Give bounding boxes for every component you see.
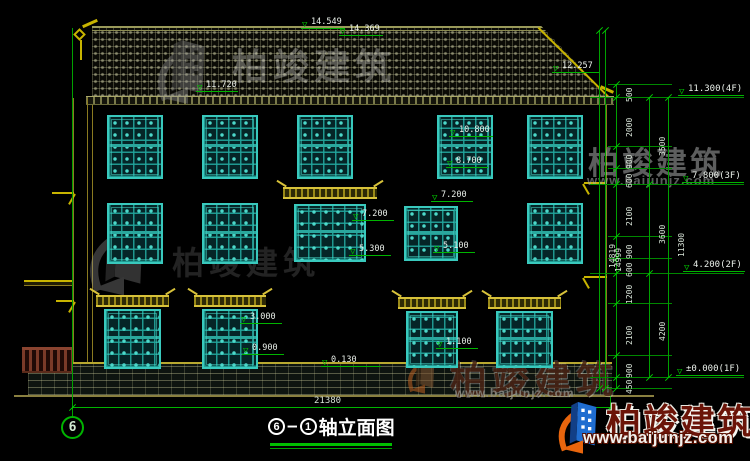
overall-width-dim: 21380 [314,396,341,406]
floor-elevation-marker: 4.200(2F)▽ [683,260,745,272]
elevation-marker: 0.130▽ [321,355,381,367]
lattice-window [297,115,353,179]
dim-chain-line [605,30,606,388]
dim-value: 600 [625,263,634,277]
left-wall-edge [73,98,74,362]
elevation-marker: 12.257▽ [552,61,600,73]
axis-line-6 [72,28,73,417]
floor-elevation-marker: 7.800(3F)▽ [682,171,744,183]
axis-circle-to: 1 [300,418,317,435]
lattice-window [202,203,258,264]
window-canopy [283,187,377,199]
dim-extension-line [608,84,672,85]
dim-value: 500 [625,88,634,102]
dim-extension-line [590,273,744,274]
elevation-marker: 3.000▽ [240,312,282,324]
elevation-marker: 7.200▽ [431,190,473,202]
axis-circle-from: 6 [268,418,285,435]
eave-bracket [52,192,74,206]
dim-value: 11300 [677,233,686,257]
dim-extension-line [608,388,672,389]
watermark-brand: 柏竣建筑 [232,38,396,90]
lattice-window [107,115,163,179]
dim-value: 900 [625,155,634,169]
dim-value: 14999 [614,248,623,272]
elevation-marker: 1.100▽ [436,337,478,349]
elevation-marker: 14.369▽ [339,24,383,36]
dim-value: 900 [625,245,634,259]
elevation-marker: 10.800▽ [449,125,493,137]
dim-extension-line [590,184,744,185]
dim-chain-line [668,97,669,377]
window-canopy [488,297,561,309]
dim-value: 450 [625,380,634,394]
dim-extension-line [608,168,672,169]
lattice-window [202,115,258,179]
dim-value: 3500 [658,137,667,156]
title-dash: – [287,416,298,438]
title-text: 轴立面图 [319,413,395,440]
dim-extension-line [608,303,672,304]
window-canopy [398,297,466,309]
drawing-title: 6 – 1 轴立面图 [268,413,395,440]
watermark-logo [558,397,608,457]
floor-elevation-marker: ±0.000(1F)▽ [676,364,744,376]
dim-value: 4200 [658,322,667,341]
dim-chain-line [599,30,600,388]
dim-chain-line [649,97,650,377]
elevation-marker: 11.720▽ [196,80,238,92]
floor-elevation-marker: 11.300(4F)▽ [678,84,744,96]
dim-value: 2100 [625,207,634,226]
eave-bracket [584,276,607,291]
overall-dim-line [72,407,610,408]
lattice-window [496,311,553,368]
courtyard-railing [22,347,72,373]
window-canopy [194,295,266,307]
lattice-window [527,203,583,264]
elevation-marker: 0.900▽ [242,343,284,355]
roof-finial [80,40,82,60]
window-canopy [96,295,169,307]
watermark-logo [148,34,228,108]
elevation-marker: 5.300▽ [349,244,391,256]
watermark-url: www.baijunjz.com [455,386,575,400]
elevation-drawing-canvas: 21380 6 6 – 1 轴立面图 柏竣建筑 柏竣建筑 www.baijunj… [0,0,750,461]
dim-value: 1200 [625,285,634,304]
lattice-window [527,115,583,179]
elevation-marker: 8.700▽ [446,156,488,168]
title-underline-thin [270,448,392,449]
elevation-marker: 5.100▽ [433,241,475,253]
dim-value: 2100 [625,326,634,345]
left-wall-ledge [24,280,72,286]
dim-value: 3600 [658,225,667,244]
lattice-window [104,309,161,369]
title-underline [270,443,392,446]
roof-finial-tip [73,28,86,41]
axis-bubble-6: 6 [61,416,84,439]
dim-value: 600 [625,174,634,188]
dim-value: 2000 [625,118,634,137]
dim-extension-line [608,355,672,356]
lattice-window [107,203,163,264]
dim-value: 900 [625,364,634,378]
elevation-marker: 7.200▽ [352,209,394,221]
watermark-url: www.baijunjz.com [583,429,733,448]
